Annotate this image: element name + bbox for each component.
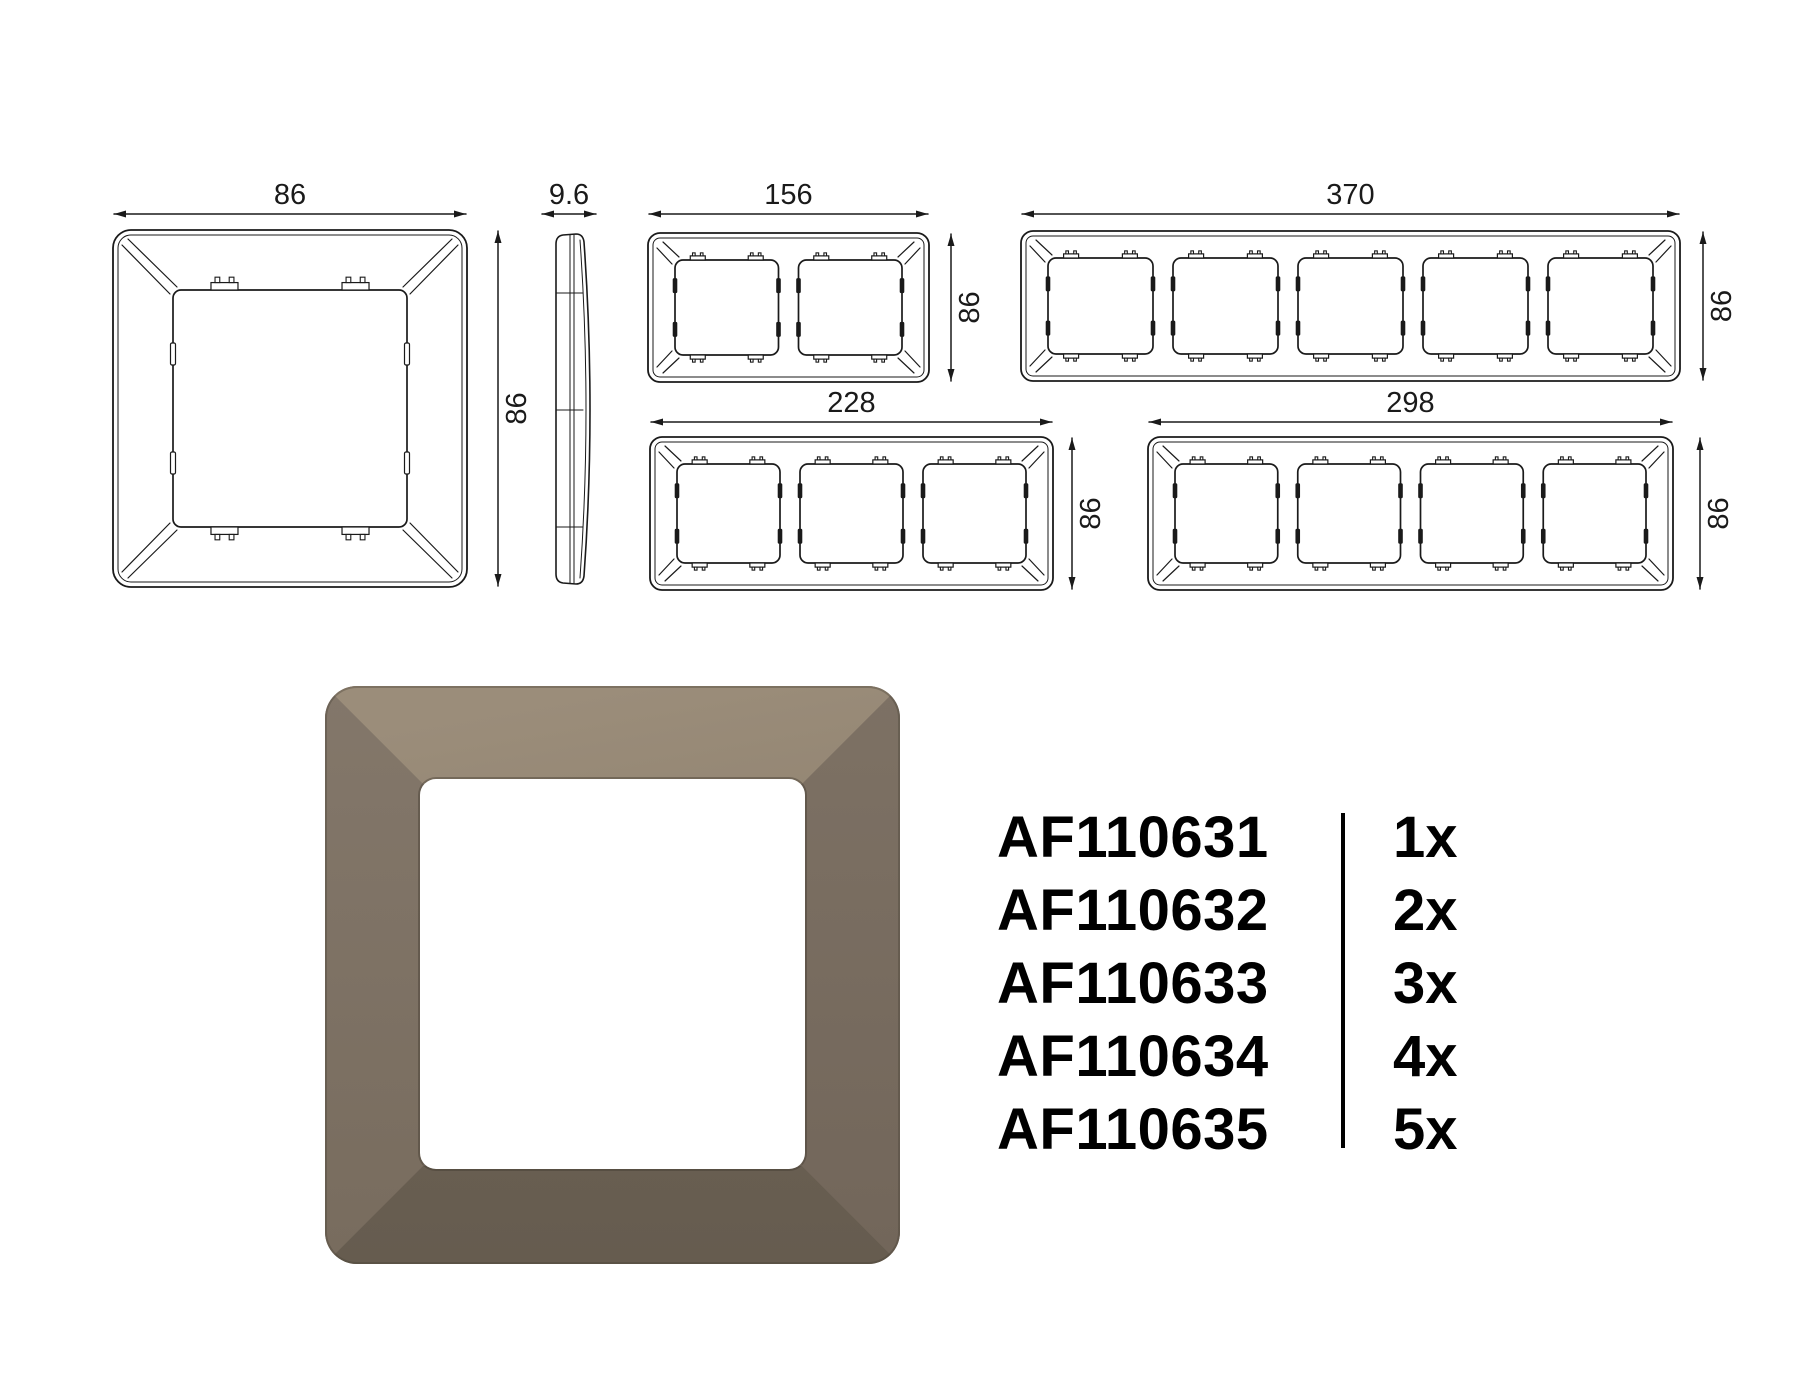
product-render: [325, 686, 900, 1264]
code-list-divider: [1341, 813, 1345, 1148]
dimension-label: 86: [1075, 497, 1107, 529]
product-quantity: 3x: [1393, 950, 1458, 1017]
render-opening: [420, 779, 805, 1169]
product-code-row: AF1106322x: [997, 874, 1458, 947]
dimension-label: 228: [827, 387, 875, 419]
dimension-label: 9.6: [549, 179, 589, 211]
product-code-row: AF1106355x: [997, 1093, 1458, 1166]
dimension-label: 156: [764, 179, 812, 211]
side-profile-drawing: 9.6: [542, 179, 596, 584]
dimension-label: 86: [1706, 290, 1738, 322]
product-quantity: 4x: [1393, 1023, 1458, 1090]
product-code: AF110633: [997, 950, 1393, 1017]
product-code-row: AF1106333x: [997, 947, 1458, 1020]
dimension-label: 86: [1703, 497, 1735, 529]
dimension-label: 86: [501, 392, 533, 424]
dimension-label: 86: [274, 179, 306, 211]
product-code-list: AF1106311xAF1106322xAF1106333xAF1106344x…: [997, 801, 1458, 1166]
frame-1gang-drawing: 8686: [113, 179, 533, 587]
product-code: AF110635: [997, 1096, 1393, 1163]
frame-3gang-drawing: 22886: [650, 387, 1107, 590]
product-code-row: AF1106311x: [997, 801, 1458, 874]
dimension-label: 298: [1386, 387, 1434, 419]
product-code: AF110631: [997, 804, 1393, 871]
product-quantity: 2x: [1393, 877, 1458, 944]
technical-drawings: 86869.615686370862288629886: [0, 0, 1800, 660]
product-code: AF110632: [997, 877, 1393, 944]
product-code-row: AF1106344x: [997, 1020, 1458, 1093]
frame-2gang-drawing: 15686: [648, 179, 986, 382]
frame-5gang-drawing: 37086: [1021, 179, 1738, 381]
dimension-label: 370: [1326, 179, 1374, 211]
product-quantity: 1x: [1393, 804, 1458, 871]
product-quantity: 5x: [1393, 1096, 1458, 1163]
frame-4gang-drawing: 29886: [1148, 387, 1735, 590]
product-code: AF110634: [997, 1023, 1393, 1090]
page: 86869.615686370862288629886 AF1106311xAF…: [0, 0, 1800, 1400]
dimension-label: 86: [954, 291, 986, 323]
